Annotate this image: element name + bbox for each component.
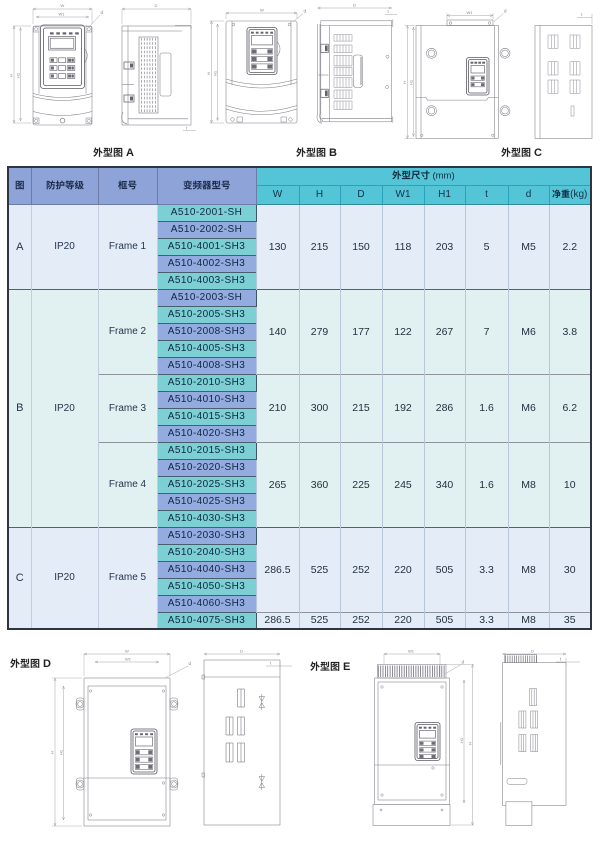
- svg-text:W1: W1: [125, 656, 132, 661]
- svg-text:H: H: [9, 74, 14, 77]
- svg-text:H: H: [402, 81, 407, 84]
- svg-text:H1: H1: [212, 70, 217, 76]
- svg-text:H: H: [467, 742, 472, 745]
- svg-text:d: d: [189, 661, 192, 666]
- svg-text:A: A: [126, 147, 134, 159]
- svg-text:H: H: [50, 751, 55, 754]
- svg-text:W1: W1: [59, 11, 66, 16]
- svg-text:W: W: [61, 3, 65, 8]
- svg-text:E: E: [343, 661, 350, 673]
- svg-text:C: C: [534, 147, 542, 159]
- svg-text:B: B: [329, 147, 337, 159]
- svg-text:d: d: [462, 660, 465, 665]
- svg-text:d: d: [504, 9, 507, 14]
- svg-text:t: t: [186, 126, 188, 131]
- svg-text:d: d: [304, 9, 307, 14]
- svg-text:t: t: [270, 661, 272, 666]
- svg-text:H1: H1: [58, 749, 63, 755]
- svg-text:d: d: [101, 10, 104, 15]
- svg-text:t: t: [581, 12, 583, 17]
- svg-text:H1: H1: [459, 737, 464, 743]
- svg-text:W1: W1: [467, 10, 474, 15]
- svg-text:H1: H1: [408, 79, 413, 85]
- svg-text:W: W: [125, 648, 129, 653]
- svg-text:t: t: [560, 657, 562, 662]
- svg-text:D: D: [155, 3, 158, 8]
- svg-text:D: D: [353, 2, 356, 7]
- svg-text:t: t: [388, 9, 390, 14]
- svg-text:D: D: [43, 658, 51, 670]
- svg-text:W: W: [260, 7, 264, 12]
- svg-text:H1: H1: [16, 72, 21, 78]
- svg-text:D: D: [531, 648, 534, 653]
- svg-text:H: H: [206, 72, 211, 75]
- svg-text:W1: W1: [408, 648, 415, 653]
- svg-text:D: D: [240, 648, 243, 653]
